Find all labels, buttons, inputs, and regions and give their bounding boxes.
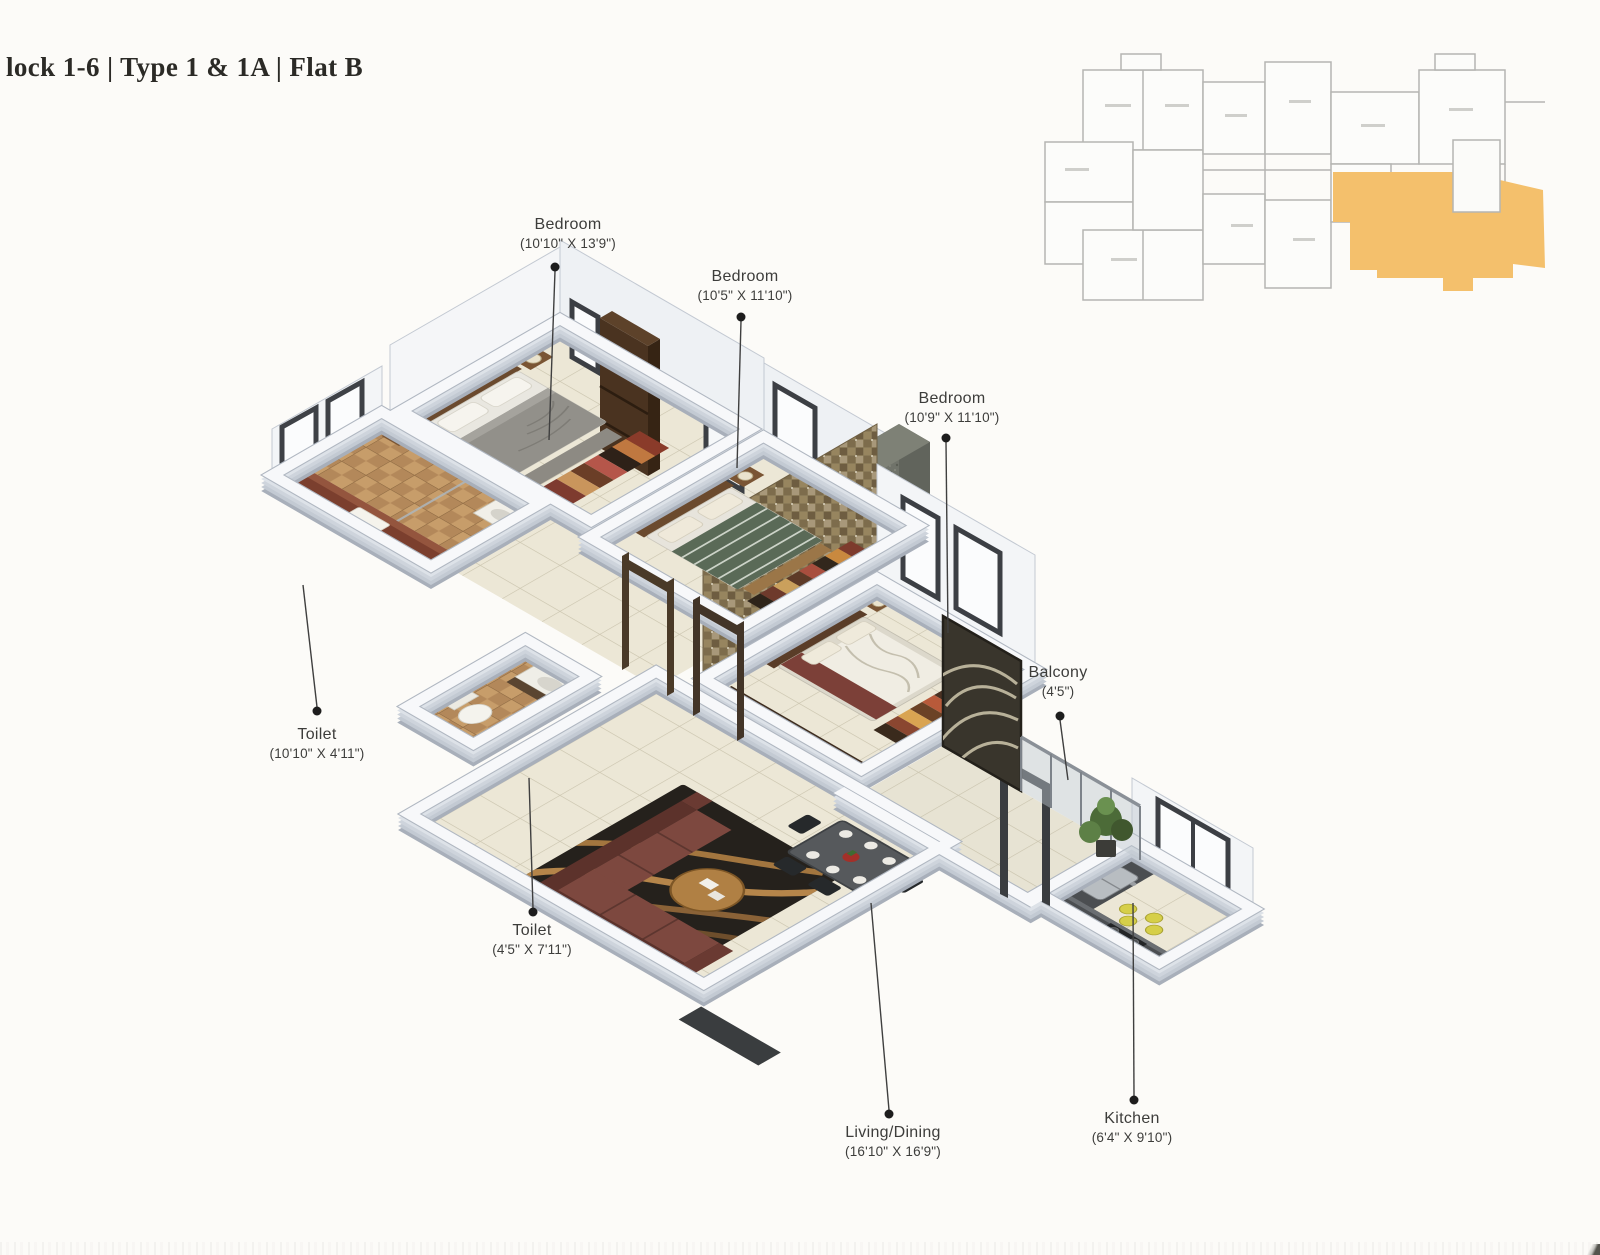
room-label-toilet-2: Toilet (4'5" X 7'11") xyxy=(492,920,572,959)
leader-living xyxy=(871,903,889,1110)
room-dims: (4'5") xyxy=(1028,683,1087,701)
room-name: Bedroom xyxy=(905,388,1000,409)
room-dims: (10'10" X 13'9") xyxy=(520,235,616,253)
page-corner-mark xyxy=(1570,1244,1600,1255)
room-label-bedroom-2: Bedroom (10'5" X 11'10") xyxy=(698,266,793,305)
room-dims: (16'10" X 16'9") xyxy=(845,1143,941,1161)
room-label-balcony: Balcony (4'5") xyxy=(1028,662,1087,701)
room-name: Toilet xyxy=(492,920,572,941)
room-name: Living/Dining xyxy=(845,1122,941,1143)
key-plan xyxy=(1025,42,1557,314)
key-plan-room-over-highlight xyxy=(1453,140,1500,212)
room-label-bedroom-3: Bedroom (10'9" X 11'10") xyxy=(905,388,1000,427)
room-name: Kitchen xyxy=(1092,1108,1173,1129)
room-name: Bedroom xyxy=(520,214,616,235)
page-title: lock 1-6 | Type 1 & 1A | Flat B xyxy=(6,52,363,83)
room-dims: (10'10" X 4'11") xyxy=(270,745,365,763)
room-label-living-dining: Living/Dining (16'10" X 16'9") xyxy=(845,1122,941,1161)
room-dims: (10'9" X 11'10") xyxy=(905,409,1000,427)
room-dims: (10'5" X 11'10") xyxy=(698,287,793,305)
room-name: Bedroom xyxy=(698,266,793,287)
room-dims: (6'4" X 9'10") xyxy=(1092,1129,1173,1147)
room-label-kitchen: Kitchen (6'4" X 9'10") xyxy=(1092,1108,1173,1147)
room-label-bedroom-1: Bedroom (10'10" X 13'9") xyxy=(520,214,616,253)
room-label-toilet-1: Toilet (10'10" X 4'11") xyxy=(270,724,365,763)
room-dims: (4'5" X 7'11") xyxy=(492,941,572,959)
scan-noise-band xyxy=(0,1242,1600,1255)
room-name: Toilet xyxy=(270,724,365,745)
leader-toilet-1 xyxy=(303,585,317,707)
low-walls xyxy=(33,314,1431,1121)
brochure-page: lock 1-6 | Type 1 & 1A | Flat B Bedroom … xyxy=(0,0,1600,1255)
key-plan-highlight xyxy=(1333,172,1545,291)
room-name: Balcony xyxy=(1028,662,1087,683)
